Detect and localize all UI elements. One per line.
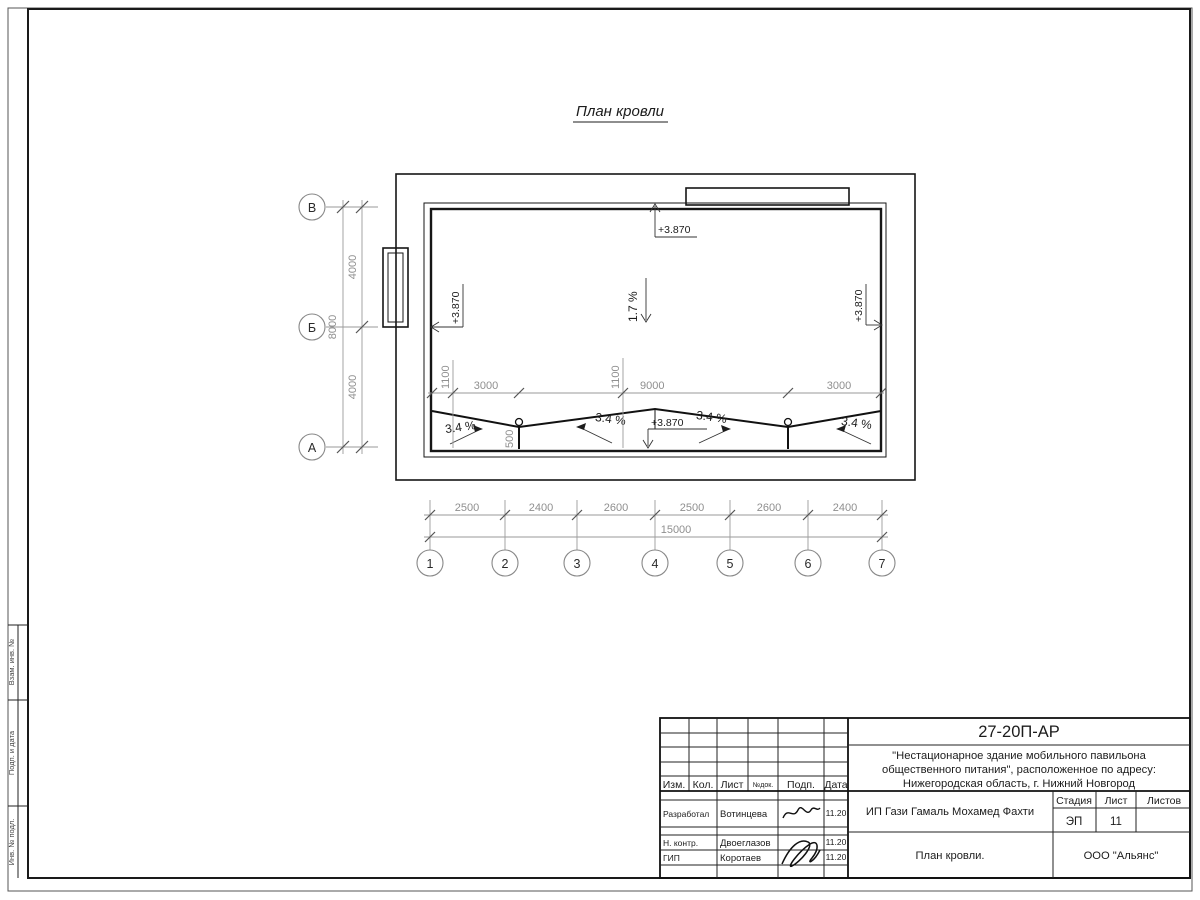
- roof-hatch-outline: [686, 188, 849, 205]
- tb-name: Коротаев: [720, 853, 761, 864]
- elevation-mark-left: +3.870: [431, 284, 463, 332]
- tb-role: ГИП: [663, 853, 680, 863]
- side-label-vzam: Взам. инв. №: [7, 639, 16, 685]
- dim-label: 1100: [610, 365, 622, 389]
- dim-label: 2500: [455, 502, 479, 514]
- axis-label: В: [308, 201, 316, 215]
- tb-name: Вотинцева: [720, 809, 768, 820]
- dim-label-col-total: 15000: [661, 524, 692, 536]
- tb-project-line3: Нижегородская область, г. Нижний Новгоро…: [903, 778, 1136, 790]
- dim-label-row-total: 8000: [327, 315, 339, 339]
- elevation-label: +3.870: [853, 289, 865, 322]
- roof-dimension-chain: 1100 3000 1100 9000 3000 500: [427, 358, 886, 448]
- tb-stage-label: Стадия: [1056, 795, 1092, 807]
- axis-label: 2: [502, 557, 509, 571]
- tb-role: Разработал: [663, 809, 709, 819]
- tb-company: ООО "Альянс": [1084, 850, 1159, 862]
- tb-project-line1: "Нестационарное здание мобильного павиль…: [892, 750, 1146, 762]
- axis-label: 7: [879, 557, 886, 571]
- drain-funnel-icon: [516, 419, 523, 426]
- dim-label: 3000: [827, 380, 851, 392]
- dim-label: 1100: [440, 365, 452, 389]
- dim-label: 2400: [529, 502, 553, 514]
- axis-label: 5: [727, 557, 734, 571]
- titleblock: Изм. Кол. Лист №док. Подп. Дата Разработ…: [660, 718, 1190, 878]
- dim-label: 2600: [757, 502, 781, 514]
- tb-sheet-label: Лист: [1105, 795, 1128, 807]
- tb-header-kol: Кол.: [693, 779, 714, 791]
- slope-label: 3.4 %: [695, 408, 728, 426]
- axis-label: 3: [574, 557, 581, 571]
- drawing-title: План кровли: [573, 103, 668, 122]
- slope-label: 3.4 %: [840, 414, 873, 432]
- tb-date: 11.20: [826, 852, 847, 862]
- tb-sheet-title: План кровли.: [916, 850, 985, 862]
- dim-label: 2400: [833, 502, 857, 514]
- dim-label: 2500: [680, 502, 704, 514]
- elevation-label: +3.870: [450, 291, 462, 324]
- side-attribute-column: Взам. инв. № Подп. и дата Инв. № подл.: [7, 625, 28, 878]
- elevation-mark-right: +3.870: [853, 284, 882, 330]
- row-axes: 8000 4000 4000 В Б А: [299, 194, 378, 460]
- tb-header-ndok: №док.: [753, 782, 774, 789]
- tb-project-line2: общественного питания", расположенное по…: [882, 764, 1156, 776]
- side-label-podp: Подп. и дата: [7, 730, 16, 775]
- slope-label: 3.4 %: [594, 410, 627, 428]
- axis-label: 4: [652, 557, 659, 571]
- tb-sheet-value: 11: [1110, 816, 1122, 828]
- tb-doc-number: 27-20П-АР: [978, 723, 1060, 741]
- axis-label: Б: [308, 321, 316, 335]
- column-axes: 2500 2400 2600 2500 2600 2400 15000 1 2 …: [417, 500, 895, 576]
- tb-sheets-label: Листов: [1147, 795, 1182, 807]
- tb-client: ИП Гази Гамаль Мохамед Фахти: [866, 806, 1034, 818]
- tb-date: 11.20: [826, 837, 847, 847]
- axis-label: 6: [805, 557, 812, 571]
- slope-label: 1.7 %: [626, 291, 640, 322]
- dim-label: 4000: [347, 375, 359, 399]
- signature-icon: [783, 808, 820, 818]
- drain-funnel-icon: [785, 419, 792, 426]
- tb-header-izm: Изм.: [663, 779, 686, 791]
- dim-label: 2600: [604, 502, 628, 514]
- side-label-inv: Инв. № подл.: [7, 819, 16, 866]
- signature-icon: [782, 841, 820, 866]
- dim-label-drain-depth: 500: [504, 430, 516, 448]
- elevation-label: +3.870: [658, 224, 691, 236]
- drawing-sheet: Взам. инв. № Подп. и дата Инв. № подл. П…: [0, 0, 1200, 900]
- main-slope-annotation: 1.7 %: [626, 278, 651, 322]
- dim-label: 4000: [347, 255, 359, 279]
- dim-label: 3000: [474, 380, 498, 392]
- tb-date: 11.20: [826, 808, 847, 818]
- axis-label: А: [308, 441, 317, 455]
- elevation-label: +3.870: [651, 417, 684, 429]
- tb-header-podp: Подп.: [787, 779, 815, 791]
- tb-header-list: Лист: [721, 779, 744, 791]
- tb-stage-value: ЭП: [1066, 816, 1083, 828]
- axis-label: 1: [427, 557, 434, 571]
- roof-outline: [431, 209, 881, 451]
- dim-label: 9000: [640, 380, 664, 392]
- tb-role: Н. контр.: [663, 838, 698, 848]
- page-title: План кровли: [576, 103, 665, 120]
- tb-name: Двоеглазов: [720, 838, 771, 849]
- tb-header-data: Дата: [824, 779, 847, 791]
